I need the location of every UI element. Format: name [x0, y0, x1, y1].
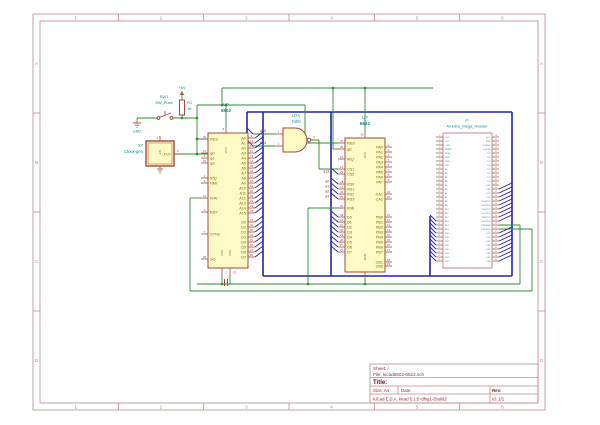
pin-number: 7: [439, 159, 440, 161]
pin-number: 6: [439, 155, 440, 157]
plus5v-label: +5V: [178, 85, 186, 90]
header-value: Arduino_Mega_Header: [446, 124, 488, 129]
pin-number: 14: [250, 159, 254, 163]
bus-entry[interactable]: [255, 197, 263, 203]
pin-number: 18: [250, 179, 254, 183]
net-label: A15: [260, 129, 266, 133]
junction-dot: [332, 87, 335, 90]
bus-entry[interactable]: [255, 231, 263, 237]
pin-number: 27: [340, 243, 344, 247]
pin-name: A4: [241, 156, 246, 160]
bus-entry[interactable]: [331, 193, 338, 199]
via-6522[interactable]: U?652234RES25φ221IRQ24CS123CS238RS037RS1…: [338, 115, 392, 278]
pin-number: 28: [340, 238, 344, 242]
pin-name: D3: [241, 235, 246, 239]
file-label: File: kicad6502-6522.sch: [373, 372, 425, 377]
pin-number: 16: [250, 169, 254, 173]
frame-row-label: C: [35, 259, 39, 264]
pin-number: 39: [495, 159, 497, 161]
size-label: Size: A4: [373, 388, 390, 393]
pin-number: 34: [340, 139, 344, 143]
switch-value: SW_Push: [155, 100, 173, 105]
resistor-value: 1K: [187, 106, 192, 111]
bus-entry[interactable]: [255, 172, 263, 178]
bus-entry[interactable]: [331, 231, 338, 237]
pin-number: 18: [438, 203, 440, 205]
bus-entry[interactable]: [255, 152, 263, 158]
pin-name: PA2: [376, 155, 383, 159]
pin-name: D2: [347, 225, 352, 229]
pin-number: 1: [439, 135, 440, 137]
bus-entry[interactable]: [331, 211, 338, 217]
pin-number: 31: [438, 255, 440, 257]
plus5v-icon: [180, 91, 184, 95]
pin-number: 30: [340, 228, 344, 232]
pin-name: PB7: [376, 250, 383, 254]
pin-number: 1: [225, 271, 227, 275]
pin-name: RES: [347, 141, 355, 145]
bus-entry[interactable]: [255, 182, 263, 188]
resistor-reference: R1: [187, 100, 193, 105]
pin-name: OUT: [164, 153, 171, 157]
rev-label: Rev:: [492, 388, 502, 393]
pin-number: 32: [250, 223, 254, 227]
pin-number: 49: [495, 199, 497, 201]
pin-number: 51: [495, 207, 497, 209]
pin-number: 24: [250, 204, 254, 208]
pin-number: 24: [438, 227, 440, 229]
frame-row-label: B: [540, 160, 543, 165]
pin-name: +5V: [445, 137, 449, 139]
pin-name: D7: [241, 255, 246, 259]
pin-name: D0/RX0: [483, 145, 491, 147]
pin-number: 33: [495, 135, 497, 137]
pin-name: +5V: [445, 141, 449, 143]
pin-name: A15: [239, 211, 246, 215]
bus-entry[interactable]: [255, 177, 263, 183]
pin-number: 19: [387, 262, 391, 266]
pin-name: SO: [210, 257, 216, 261]
pin-number: 15: [387, 238, 391, 242]
pin-name: D6: [241, 250, 246, 254]
pin-number: 22: [438, 219, 440, 221]
bus-entry[interactable]: [331, 246, 338, 252]
clock-generator[interactable]: OUT81ENX?Clock-gen: [124, 136, 182, 173]
pin-name: D4: [241, 240, 246, 244]
frame-row-label: A: [540, 61, 543, 66]
pin-name: A10: [239, 186, 246, 190]
pin-number: 21: [438, 215, 440, 217]
pin-number: 26: [438, 235, 440, 237]
pin-number: 6: [388, 163, 390, 167]
bus-entry[interactable]: [331, 236, 338, 242]
resistor-r1[interactable]: [180, 100, 185, 115]
pin-number: 17: [387, 248, 391, 252]
gnd-label: GND: [133, 130, 141, 134]
pin-number: 32: [438, 259, 440, 261]
pin-number: 20: [438, 211, 440, 213]
pin-name: VCC: [363, 151, 367, 158]
pin-name: A9: [241, 181, 246, 185]
pin-number: 17: [250, 174, 254, 178]
pin-name: CB2: [376, 264, 383, 268]
pin-name: R/W: [210, 196, 218, 200]
pin-number: 44: [495, 179, 497, 181]
pin-number: 31: [340, 223, 344, 227]
pin-number: 38: [495, 155, 497, 157]
pin-number: 23: [438, 223, 440, 225]
bus-entry[interactable]: [331, 188, 338, 194]
pin-name: A13: [239, 201, 246, 205]
pin-number: 8: [177, 149, 179, 153]
pin-name: IRQ: [347, 157, 354, 161]
bus-entry[interactable]: [255, 226, 263, 232]
pin-number: 37: [495, 151, 497, 153]
pin-number: 24: [340, 165, 344, 169]
pin-number: 38: [340, 180, 344, 184]
pin-number: 26: [250, 253, 254, 257]
pin-name: GND: [363, 253, 367, 261]
pin-name: A5: [241, 161, 246, 165]
pin-number: 14: [438, 187, 440, 189]
pin-name: PB5: [376, 240, 383, 244]
pin-name: RS1: [347, 187, 354, 191]
pin-name: PA0: [376, 145, 383, 149]
frame-col-label: 1: [74, 16, 77, 21]
pin-number: 26: [340, 248, 344, 252]
pin-name: φ1: [210, 156, 215, 160]
pin-number: 4: [388, 153, 390, 157]
pin-number: 14: [387, 233, 391, 237]
pin-number: 20: [250, 189, 254, 193]
bus-entry[interactable]: [255, 207, 263, 213]
pin-name: GND: [445, 161, 450, 163]
pin-number: 10: [438, 171, 440, 173]
bus-entry[interactable]: [331, 221, 338, 227]
pin-name: PB1: [376, 220, 383, 224]
pin-name: D19/RX1: [482, 221, 491, 223]
pin-name: PA1: [376, 150, 383, 154]
date-label: Date:: [401, 388, 412, 393]
pin-number: 30: [438, 251, 440, 253]
via-6522-value: 6522: [360, 121, 371, 126]
pin-name: D2: [241, 230, 246, 234]
pin-number: 1: [157, 136, 159, 140]
pin-number: 19: [250, 184, 254, 188]
bus-entry[interactable]: [255, 246, 263, 252]
pin-number: 53: [495, 215, 497, 217]
cpu-6502-reference: U?: [223, 102, 229, 107]
frame-row-label: C: [540, 259, 544, 264]
pin-number: 40: [387, 190, 391, 194]
pin-name: D5: [241, 245, 246, 249]
pin-number: 15: [438, 191, 440, 193]
pin-name: RS0: [347, 182, 354, 186]
pin-name: A1: [241, 141, 246, 145]
pin-number: 5: [439, 151, 440, 153]
pin-name: D4: [347, 235, 352, 239]
pin-number: 9: [251, 134, 253, 138]
pin-number: 50: [495, 203, 497, 205]
schematic-canvas[interactable]: 112233445566AABBCCDDSheet: /File: kicad6…: [0, 0, 600, 425]
pin-name: φ2: [210, 161, 215, 165]
pin-number: 8: [223, 127, 225, 131]
pin-name: PA4: [376, 165, 383, 169]
bus-entry[interactable]: [331, 226, 338, 232]
pin-name: PB2: [376, 225, 383, 229]
frame-col-label: 6: [501, 405, 504, 410]
pin-number: 36: [495, 147, 497, 149]
pin-number: 6: [204, 179, 206, 183]
pin-name: GND: [445, 157, 450, 159]
sheet-id-label: Id: 1/1: [492, 397, 505, 402]
schematic-page: 112233445566AABBCCDDSheet: /File: kicad6…: [0, 0, 600, 425]
bus-entry[interactable]: [331, 178, 338, 184]
pin-number: 60: [495, 243, 497, 245]
net-label: a0: [325, 180, 329, 184]
frame-col-label: 2: [160, 405, 163, 410]
pin-name: D16/TX2: [482, 209, 491, 211]
pin-name: VSS: [228, 250, 232, 256]
pin-number: 34: [495, 139, 497, 141]
pin-number: 11: [250, 144, 253, 148]
pin-number: 57: [495, 231, 497, 233]
pin-number: 11: [438, 175, 440, 177]
pin-name: RESET: [445, 149, 453, 151]
pin-name: D17/RX2: [482, 213, 491, 215]
pin-number: 54: [495, 219, 497, 221]
pin-name: D15/RX3: [482, 205, 491, 207]
frame-row-label: B: [35, 160, 38, 165]
pin-number: 39: [203, 159, 207, 163]
pin-number: 45: [495, 183, 497, 185]
pin-number: 19: [438, 207, 440, 209]
pin-number: 25: [250, 209, 254, 213]
pin-name: CA1: [376, 192, 383, 196]
pin-number: 56: [495, 227, 497, 229]
pin-name: PA7: [376, 180, 383, 184]
via-6522-reference: U?: [362, 115, 368, 120]
frame-row-label: D: [35, 358, 39, 363]
pin-name: EN: [158, 150, 162, 154]
pin-name: SYNC: [210, 232, 221, 236]
junction-dot: [307, 283, 310, 286]
junction-dot: [364, 87, 367, 90]
pin-number: 25: [340, 145, 344, 149]
pin-number: 35: [340, 195, 344, 199]
switch-reference: SW1: [160, 94, 169, 99]
pin-name: D1: [241, 225, 246, 229]
frame-col-label: 4: [330, 16, 333, 21]
bus-entry[interactable]: [331, 183, 338, 189]
pin-number: 1: [278, 130, 280, 134]
nand-bubble: [307, 138, 311, 142]
pin-number: 11: [387, 218, 390, 222]
pin-name: RES: [210, 137, 218, 141]
pin-name: D0: [241, 220, 246, 224]
pin-name: A8: [241, 176, 246, 180]
bus-entry[interactable]: [255, 192, 263, 198]
pin-name: PB4: [376, 235, 383, 239]
kicad-version-label: KiCad E.D.A. kicad 5.1.5+dfsg1-2build2: [373, 397, 447, 402]
pin-name: A2: [241, 146, 246, 150]
net-label: a13: [323, 170, 329, 174]
net-label: A14: [260, 141, 266, 145]
pin-name: A14: [239, 206, 246, 210]
pin-name: φ0: [210, 151, 215, 155]
junction-dot: [196, 153, 199, 156]
pin-number: 59: [495, 239, 497, 241]
pin-number: 7: [388, 168, 390, 172]
pin-number: 28: [438, 243, 440, 245]
pin-number: 15: [250, 164, 254, 168]
pin-number: 43: [495, 175, 497, 177]
pin-number: 23: [250, 199, 254, 203]
pin-number: 22: [250, 194, 254, 198]
pin-name: PB6: [376, 245, 383, 249]
frame-col-label: 3: [245, 405, 248, 410]
pin-name: SDA: [486, 140, 491, 143]
pin-number: 9: [439, 167, 440, 169]
net-label: a1: [325, 185, 329, 189]
net-label: a2: [325, 190, 329, 194]
pin-name: VIN: [445, 165, 449, 167]
pin-number: 42: [495, 171, 497, 173]
arduino-mega-header[interactable]: J?Arduino_Mega_Header1+5V2+5V3+3V34RESET…: [436, 118, 499, 269]
frame-col-label: 4: [330, 405, 333, 410]
pin-name: CS1: [347, 167, 354, 171]
pin-number: 4: [439, 147, 440, 149]
pin-number: 36: [340, 190, 344, 194]
pin-number: 30: [250, 233, 254, 237]
pin-name: IRQ: [210, 176, 217, 180]
pin-name: PA3: [376, 160, 383, 164]
pin-number: 33: [340, 213, 344, 217]
frame-row-label: D: [540, 358, 544, 363]
pin-number: 21: [340, 155, 344, 159]
pin-number: 9: [388, 178, 390, 182]
bus-entry[interactable]: [255, 251, 263, 257]
pin-number: 2: [439, 139, 440, 141]
pin-name: PB0: [376, 215, 383, 219]
switch-contact: [170, 117, 173, 120]
title-block: Sheet: /File: kicad6502-6522.schTitle:Si…: [370, 364, 538, 403]
pin-number: 29: [250, 238, 254, 242]
bus-entry[interactable]: [331, 216, 338, 222]
bus-entry[interactable]: [255, 157, 263, 163]
pin-name: R/W: [347, 206, 355, 210]
pin-number: 3: [388, 148, 390, 152]
pin-name: VCC: [224, 146, 228, 153]
pin-name: PB3: [376, 230, 383, 234]
pin-number: 12: [250, 149, 254, 153]
pin-number: 41: [495, 167, 497, 169]
bus-entry[interactable]: [255, 216, 263, 222]
pin-number: 13: [387, 228, 391, 232]
frame-col-label: 3: [245, 16, 248, 21]
pin-number: 25: [438, 231, 440, 233]
pin-number: 31: [250, 228, 254, 232]
frame-row-label: A: [35, 61, 38, 66]
pin-number: 3: [439, 143, 440, 145]
pin-name: D21/SCL: [482, 229, 491, 231]
pin-number: 29: [438, 247, 440, 249]
pin-name: A0: [241, 136, 246, 140]
bus-entry[interactable]: [255, 236, 263, 242]
pin-number: 37: [203, 149, 207, 153]
pin-name: D14/TX3: [482, 201, 491, 203]
bus-entry[interactable]: [255, 187, 263, 193]
pin-name: RS3: [347, 197, 354, 201]
pin-number: 28: [250, 243, 254, 247]
pin-name: A11: [240, 191, 246, 195]
pin-number: 20: [360, 133, 364, 137]
pin-number: 4: [204, 174, 206, 178]
bus-entry[interactable]: [255, 202, 263, 208]
bus-entry[interactable]: [255, 241, 263, 247]
pin-name: D3: [347, 230, 352, 234]
pin-name: RDY: [210, 210, 218, 214]
pin-number: 32: [340, 218, 344, 222]
pin-number: 33: [250, 218, 254, 222]
pin-number: 27: [250, 248, 254, 252]
pin-name: NMI: [210, 181, 217, 185]
pin-number: 55: [495, 223, 497, 225]
pin-number: 13: [250, 154, 254, 158]
pin-number: 8: [439, 163, 440, 165]
reset-circuit[interactable]: R11K+5VSW1SW_PushGND: [133, 85, 193, 134]
bus-entry[interactable]: [255, 162, 263, 168]
pin-name: D18/TX1: [482, 217, 491, 219]
pin-number: 12: [387, 223, 391, 227]
bus-entry[interactable]: [255, 167, 263, 173]
junction-dot: [196, 117, 199, 120]
pin-number: 2: [204, 208, 206, 212]
bus-entry[interactable]: [255, 221, 263, 227]
pin-number: 7: [204, 230, 206, 234]
pin-name: D7: [347, 250, 352, 254]
sheet-label: Sheet: /: [373, 366, 390, 371]
pin-name: CA2: [376, 197, 383, 201]
frame-col-label: 5: [416, 405, 419, 410]
bus-entry[interactable]: [331, 241, 338, 247]
pin-number: 13: [438, 183, 440, 185]
pin-name: A12: [239, 196, 246, 200]
junction-dot: [364, 283, 367, 286]
pin-name: PA6: [376, 175, 383, 179]
pin-name: CS2: [347, 172, 354, 176]
header-reference: J?: [465, 118, 470, 123]
pin-number: 40: [203, 135, 207, 139]
pin-number: 47: [495, 191, 497, 193]
pin-name: VSS: [220, 250, 224, 256]
pin-name: AREF: [445, 152, 451, 155]
pin-number: 17: [438, 199, 440, 201]
pin-number: 37: [340, 185, 344, 189]
pin-number: 22: [340, 204, 344, 208]
pin-number: 39: [387, 195, 391, 199]
pin-number: 64: [495, 259, 497, 261]
pin-number: 46: [495, 187, 497, 189]
pin-number: 10: [387, 213, 391, 217]
nand-reference: U?A: [292, 113, 300, 118]
nand-body[interactable]: [283, 128, 307, 152]
bus-entry[interactable]: [255, 147, 263, 153]
pin-number: 8: [388, 173, 390, 177]
frame-col-label: 5: [416, 16, 419, 21]
pin-number: 58: [495, 235, 497, 237]
pin-number: 16: [387, 243, 391, 247]
